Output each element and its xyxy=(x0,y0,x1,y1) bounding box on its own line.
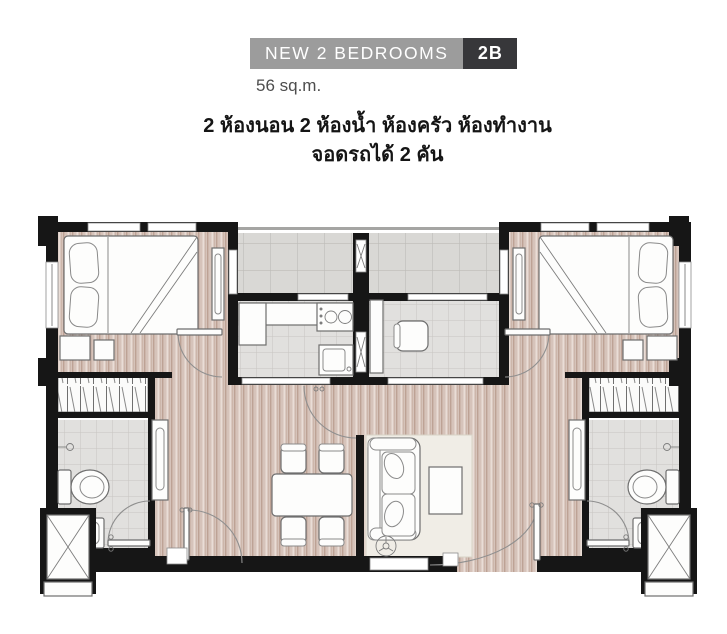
knob-icon xyxy=(320,308,323,311)
entrance-door xyxy=(534,504,540,560)
window-bedL-top-1 xyxy=(88,223,140,231)
pillow-icon xyxy=(638,286,669,328)
shaft-left-base xyxy=(44,582,92,596)
wall-top-right xyxy=(499,222,691,232)
column-top-left xyxy=(38,216,58,246)
knob-icon xyxy=(320,322,323,325)
wardrobe-panel-inner xyxy=(215,254,221,314)
bathroom-left-slide-door xyxy=(108,540,150,546)
page: NEW 2 BEDROOMS 2B 56 sq.m. 2 ห้องนอน 2 ห… xyxy=(0,0,727,634)
vent-bottom xyxy=(370,558,428,570)
dining-table-icon xyxy=(272,474,352,516)
wall-wardrobeL-bottom xyxy=(46,412,155,418)
balcony-railing xyxy=(238,227,499,230)
sofa-arm xyxy=(370,438,416,450)
glass-panel-inner xyxy=(156,428,164,490)
balcony-door-left xyxy=(229,250,237,294)
window-bedR-top-1 xyxy=(541,223,589,231)
desk-icon xyxy=(370,300,383,373)
chair-back xyxy=(281,539,306,546)
bedroom-right-door xyxy=(505,329,550,335)
kitchen-sink-basin xyxy=(323,349,345,371)
slider-kitchen xyxy=(242,378,330,384)
desk-chair-icon xyxy=(396,321,428,351)
nightstand-icon xyxy=(94,340,114,360)
toilet-tank xyxy=(666,470,679,504)
knob-icon xyxy=(320,315,323,318)
nightstand-icon xyxy=(60,336,90,360)
window-kitchen xyxy=(298,294,348,300)
sofa-back xyxy=(368,438,380,540)
wall-bedroom-right xyxy=(499,222,509,385)
entrance-sill xyxy=(443,553,458,566)
wardrobe-right xyxy=(589,377,679,412)
wardrobe-left xyxy=(58,377,148,412)
bathroom-right-slide-door xyxy=(587,540,629,546)
wardrobe-panel-inner xyxy=(516,254,522,314)
wall-living-divider xyxy=(356,435,364,556)
workroom-floor xyxy=(369,301,499,377)
wall-bedroom-left xyxy=(228,222,238,385)
column-mid-left xyxy=(38,358,58,386)
pillow-icon xyxy=(69,242,100,284)
chair-back xyxy=(319,444,344,451)
desk-chair-back xyxy=(394,324,400,348)
wall-top-left xyxy=(46,222,238,232)
chair-back xyxy=(319,539,344,546)
window-workroom xyxy=(408,294,487,300)
coffee-table-icon xyxy=(429,467,462,514)
toilet-bowl xyxy=(80,476,104,498)
window-bedL-top-2 xyxy=(148,223,196,231)
hall-sill xyxy=(167,548,187,564)
glass-panel-inner xyxy=(573,428,581,490)
fridge-icon xyxy=(239,303,266,345)
nightstand-icon xyxy=(647,336,677,360)
toilet-bowl xyxy=(633,476,657,498)
pillow-icon xyxy=(69,286,100,328)
wall-wardrobeR-bottom xyxy=(582,412,691,418)
slider-workroom xyxy=(388,378,483,384)
shaft-right-base xyxy=(645,582,693,596)
bedroom-left-door xyxy=(177,329,222,335)
balcony-door-right xyxy=(500,250,508,294)
window-bedR-top-2 xyxy=(597,223,649,231)
pillow-icon xyxy=(638,242,669,284)
nightstand-icon xyxy=(623,340,643,360)
chair-back xyxy=(281,444,306,451)
cooktop-icon xyxy=(317,303,353,331)
toilet-tank xyxy=(58,470,71,504)
floor-plan-svg xyxy=(0,0,727,634)
column-mid-right xyxy=(669,358,689,386)
